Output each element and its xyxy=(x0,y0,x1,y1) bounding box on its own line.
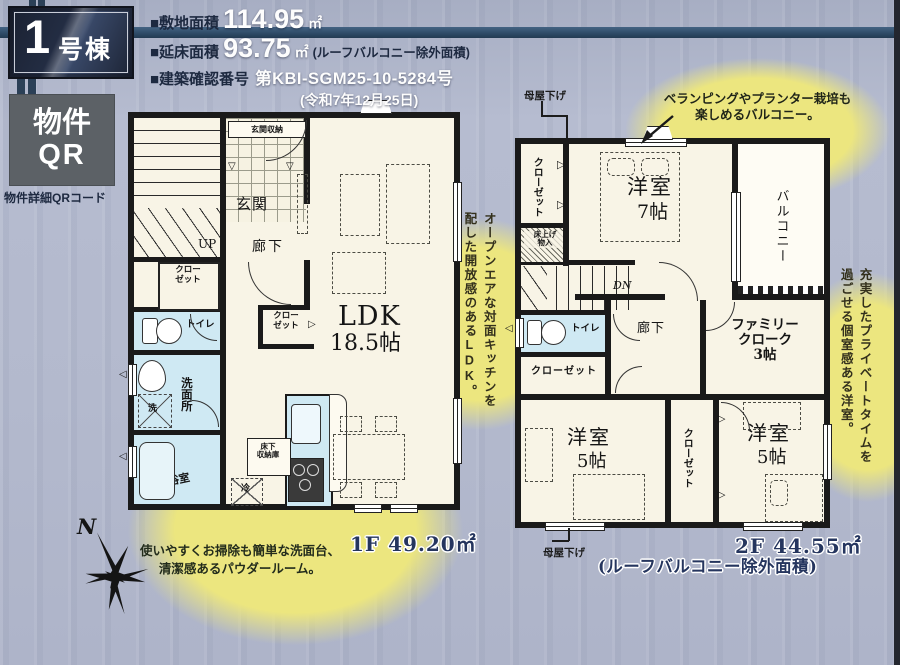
toilet-bowl-icon xyxy=(156,318,182,344)
wall xyxy=(258,344,314,349)
sofa-dashed xyxy=(340,174,380,236)
balcony-annotation-l1: ベランピングやプランター栽培も xyxy=(664,92,852,106)
window xyxy=(731,192,741,282)
site-area-line: ■敷地面積 114.95 ㎡ xyxy=(150,4,630,35)
burner xyxy=(307,464,319,476)
room-label-bedroom5l: 洋室 xyxy=(567,426,611,448)
closet-door-mark: ▷ xyxy=(557,160,565,171)
bedroom-annotation: 充実したプライベートタイムを 過ごせる個室感ある洋室。 xyxy=(836,268,874,493)
furniture-dashed xyxy=(573,474,645,520)
badge-number: 1 xyxy=(24,9,50,64)
wall xyxy=(128,350,226,355)
permit-line: ■建築確認番号 第KBI-SGM25-10-5284号 xyxy=(150,65,630,89)
permit-value: 第KBI-SGM25-10-5284号 xyxy=(255,65,453,89)
vent-mark: ◁ xyxy=(505,324,513,334)
closet-1f-b-l2: ゼット xyxy=(273,321,299,331)
balcony-annotation-l2: 楽しめるバルコニー。 xyxy=(695,108,820,122)
room-label-ldk: LDK xyxy=(338,302,401,332)
fc-l1: ファミリー xyxy=(731,317,799,333)
pillow-dashed xyxy=(770,480,788,506)
floor-area-label: ■延床面積 xyxy=(150,41,219,62)
fridge-label: 冷 xyxy=(241,484,250,494)
wall xyxy=(515,310,611,315)
wall xyxy=(732,294,830,300)
bedroom-annotation-col1: 充実したプライベートタイムを xyxy=(858,268,872,464)
building-badge: 1 号棟 xyxy=(8,6,134,79)
vent-mark: ◁ xyxy=(119,452,127,462)
right-edge-strip xyxy=(894,0,900,665)
wall xyxy=(569,260,635,265)
moyasage-bottom-label: 母屋下げ xyxy=(543,545,585,560)
room-label-closet-tl: クローゼット xyxy=(531,154,542,220)
raised-storage-label: 床上げ 物入 xyxy=(524,231,566,248)
window xyxy=(128,446,137,478)
door-frame-mark: ▽ xyxy=(228,162,236,172)
ldk-annotation: オープンエアな対面キッチンを 配した開放感のあるLDK。 xyxy=(459,212,498,412)
sink-icon xyxy=(138,360,166,392)
floor-area-line: ■延床面積 93.75 ㎡ (ルーフバルコニー除外面積) xyxy=(150,33,630,64)
window xyxy=(545,522,605,531)
leader-line xyxy=(541,101,543,115)
ldk-annotation-col1: オープンエアな対面キッチンを xyxy=(482,212,496,408)
dining-table-dashed xyxy=(333,434,405,480)
room-label-closet-bottom: クローゼット xyxy=(681,410,692,506)
window xyxy=(354,504,382,513)
room-label-family-cloak: ファミリー クローク 3帖 xyxy=(725,318,805,363)
wall xyxy=(515,223,569,228)
storage-l2: 物入 xyxy=(538,238,553,247)
vent-mark: ◁ xyxy=(119,370,127,380)
closet-door-mark: ▷ xyxy=(557,200,565,211)
toilet-bowl-icon xyxy=(541,320,566,345)
stove-icon xyxy=(288,458,324,502)
wall xyxy=(128,430,226,435)
chair-dashed xyxy=(340,416,362,432)
wall xyxy=(605,300,611,394)
badge-suffix: 号棟 xyxy=(58,30,112,66)
closet-1f-a-l2: ゼット xyxy=(175,275,201,285)
wall xyxy=(515,394,830,400)
permit-label: ■建築確認番号 xyxy=(150,68,249,89)
floor1-area-label: 1F 49.20㎡ xyxy=(350,528,477,557)
room-label-dn: DN xyxy=(613,280,631,292)
room-label-genkan: 玄関 xyxy=(236,196,268,213)
desk-dashed xyxy=(525,428,553,482)
fc-l3: 3帖 xyxy=(754,347,777,363)
site-area-unit: ㎡ xyxy=(308,13,322,33)
floor-plan-1f: クロー ゼット クロー ゼット ▷ 玄関収納 ▽ ▽ 玄関 UP 廊下 トイレ … xyxy=(128,112,460,510)
room-label-bedroom5l-size: 5帖 xyxy=(577,452,606,472)
room-label-washroom: 洗面所 xyxy=(180,362,193,426)
fc-l2: クローク xyxy=(738,332,792,348)
desk-dashed xyxy=(743,402,801,430)
room-label-hallway-2f: 廊下 xyxy=(637,322,665,337)
closet-1f-b-l1: クロー xyxy=(273,311,299,321)
leader-line xyxy=(541,115,567,117)
closet-door-mark: ▷ xyxy=(717,414,725,425)
site-area-value: 114.95 xyxy=(223,4,304,35)
room-label-hallway-1f: 廊下 xyxy=(252,240,284,256)
compass-north-label: N xyxy=(77,514,96,539)
burner xyxy=(299,479,311,491)
compass-star xyxy=(55,512,175,642)
kitchen-sink-icon xyxy=(291,404,321,444)
floor-area-unit: ㎡ xyxy=(295,42,309,62)
room-label-ldk-size: 18.5帖 xyxy=(330,332,401,357)
pillow-dashed xyxy=(607,158,635,176)
closet-1f-a-l1: クロー xyxy=(175,265,201,275)
permit-date-line: (令和7年12月25日) xyxy=(300,90,630,110)
leader-line xyxy=(566,115,568,139)
window xyxy=(390,504,418,513)
qr-box: 物件 QR xyxy=(10,95,114,185)
shelf-dashed xyxy=(297,174,308,234)
underfloor-storage-label: 床下 収納庫 xyxy=(252,443,284,460)
stairs-winder-2f xyxy=(521,266,547,310)
leader-line xyxy=(552,540,569,542)
stairs-winder-1f xyxy=(134,208,220,260)
living-table-dashed xyxy=(332,252,386,294)
wall xyxy=(128,112,460,118)
floor-area-value: 93.75 xyxy=(223,33,291,64)
washer-label: 洗 xyxy=(148,404,157,414)
bathtub-icon xyxy=(139,442,175,500)
wall xyxy=(304,260,310,310)
floor-plan-2f: 床上げ 物入 クローゼット ▷ ▷ 洋室 7帖 バルコニー DN トイレ 廊下 … xyxy=(515,138,830,528)
closet-door-mark: ▷ xyxy=(717,490,725,501)
burner xyxy=(293,464,305,476)
powder-annotation-l2: 清潔感あるパウダールーム。 xyxy=(159,562,321,576)
floor2-area-note: (ルーフバルコニー除外面積) xyxy=(598,553,817,577)
moyasage-top-label: 母屋下げ xyxy=(524,88,566,103)
qr-label-2: QR xyxy=(38,140,86,172)
room-label-closet-mid: クローゼット xyxy=(531,366,597,377)
stairs-1f xyxy=(134,118,220,208)
qr-label-1: 物件 xyxy=(33,108,91,140)
window xyxy=(128,364,137,396)
balcony-drain-strip xyxy=(738,286,824,294)
closet-door-mark: ▷ xyxy=(308,320,316,330)
compass: N xyxy=(55,512,175,642)
closet-1f-b-label: クロー ゼット xyxy=(264,312,308,331)
bedroom-annotation-col2: 過ごせる個室感ある洋室。 xyxy=(839,268,853,436)
chair-dashed xyxy=(340,482,362,498)
permit-date: (令和7年12月25日) xyxy=(300,92,418,108)
sofa-dashed xyxy=(386,164,430,244)
underfloor-l2: 収納庫 xyxy=(257,450,280,459)
window xyxy=(823,424,832,480)
room-label-bedroom5r-size: 5帖 xyxy=(757,448,786,468)
wall xyxy=(515,352,611,357)
wall xyxy=(258,305,263,349)
room-label-balcony: バルコニー xyxy=(773,180,788,272)
pillow-dashed xyxy=(641,158,669,176)
wall xyxy=(258,305,310,310)
toilet-tank-icon xyxy=(527,320,542,345)
wall xyxy=(665,400,671,528)
chair-dashed xyxy=(375,482,397,498)
chair-dashed xyxy=(375,416,397,432)
door-frame-mark: ▽ xyxy=(286,162,294,172)
qr-caption: 物件詳細QRコード xyxy=(4,189,106,206)
room-label-toilet-2f: トイレ xyxy=(571,324,600,335)
window xyxy=(515,318,524,348)
floor-area-note: (ルーフバルコニー除外面積) xyxy=(313,42,470,61)
wall xyxy=(575,294,665,300)
room-label-up: UP xyxy=(198,238,216,251)
ldk-annotation-col2: 配した開放感のあるLDK。 xyxy=(462,212,476,399)
closet-1f-a-label: クロー ゼット xyxy=(162,266,214,285)
flyer-page: 1 号棟 ■敷地面積 114.95 ㎡ ■延床面積 93.75 ㎡ (ルーフバル… xyxy=(0,0,900,665)
site-area-label: ■敷地面積 xyxy=(150,12,219,33)
balcony-arrow xyxy=(633,108,683,150)
